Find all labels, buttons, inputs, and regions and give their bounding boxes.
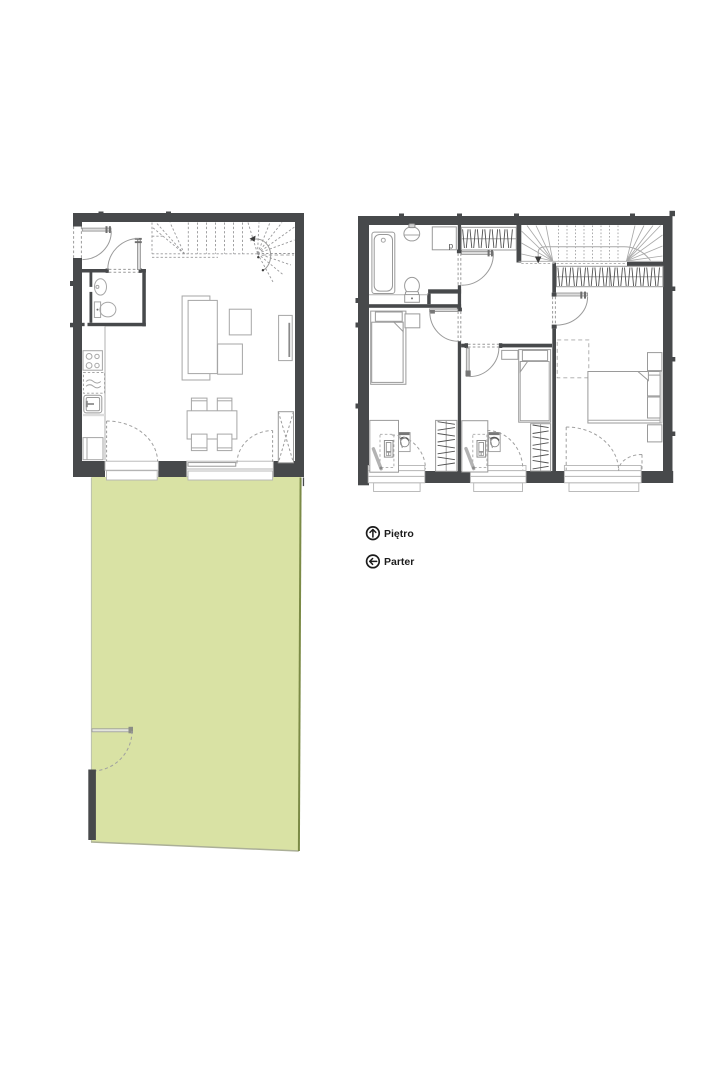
svg-text:p: p	[449, 241, 454, 250]
svg-text:Piętro: Piętro	[384, 528, 414, 540]
svg-text:Parter: Parter	[384, 556, 414, 568]
